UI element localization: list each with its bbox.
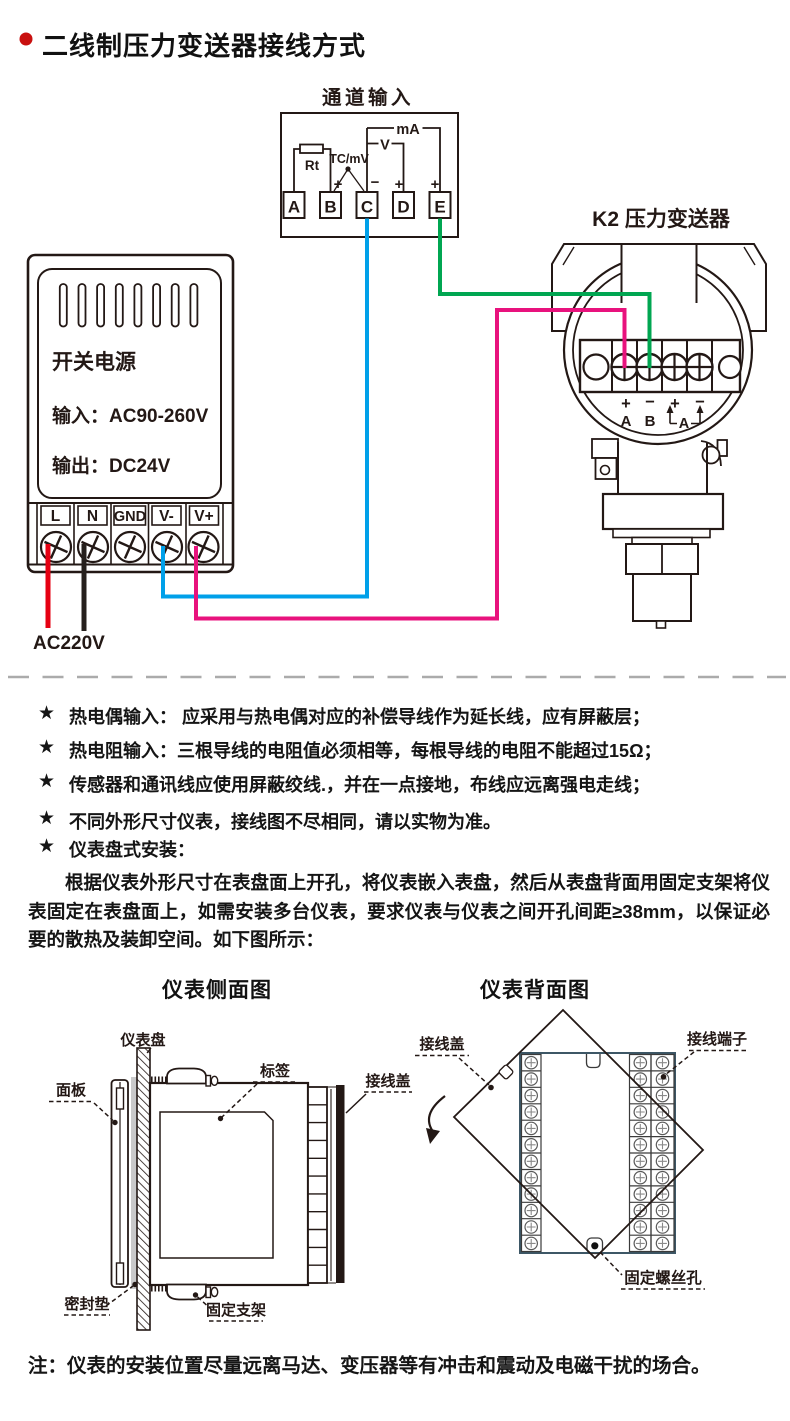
tx-sign-2: −: [645, 393, 655, 411]
installation-diagrams: 仪表盘 面板 标签 接线盖 密封垫 固定支架: [0, 1005, 790, 1340]
process-connection: [603, 442, 723, 628]
star-icon: ★: [38, 836, 55, 862]
note-item: ★ 热电偶输入： 应采用与热电偶对应的补偿导线作为延长线，应有屏蔽层；: [38, 703, 650, 729]
terminal-cover-bar: [336, 1085, 345, 1283]
install-intro-paragraph: 根据仪表外形尺寸在表盘面上开孔，将仪表嵌入表盘，然后从表盘背面用固定支架将仪表固…: [28, 869, 770, 955]
star-icon: ★: [38, 703, 55, 729]
cover-screw-hole: [498, 1064, 514, 1080]
back-view-title: 仪表背面图: [450, 974, 620, 1004]
psu-terminal-vminus: V-: [159, 508, 174, 525]
psu-output-spec: 输出：DC24V: [52, 454, 171, 477]
terminal-c-label: C: [361, 198, 373, 217]
sign-plus-b: +: [334, 176, 343, 193]
wire-supply-pink: [196, 310, 625, 619]
tx-letter-b: B: [645, 413, 656, 430]
sign-plus-e: +: [431, 176, 440, 193]
psu-terminal-labels: L N GND V- V+: [41, 506, 219, 525]
terminal-d-label: D: [397, 198, 409, 217]
channel-input-block: 通道输入 Rt TC/mV V mA + − + + A B C D: [281, 86, 458, 237]
mains-voltage-label: AC220V: [33, 633, 105, 654]
label-tag-label: 标签: [259, 1062, 291, 1080]
psu-terminal-n: N: [87, 508, 98, 525]
wiring-diagram: 通道输入 Rt TC/mV V mA + − + + A B C D: [0, 0, 790, 692]
v-range-label: V: [380, 138, 390, 154]
note-text: 不同外形尺寸仪表，接线图不尽相同，请以实物为准。: [69, 808, 501, 834]
footer-note: 注：仪表的安装位置尽量远离马达、变压器等有冲击和震动及电磁干扰的场合。: [28, 1349, 773, 1378]
sign-plus-d: +: [395, 176, 404, 193]
psu-input-spec: 输入：AC90-260V: [52, 404, 209, 427]
power-supply-block: 开关电源 输入：AC90-260V 输出：DC24V L N GND V- V+: [28, 255, 233, 572]
terminal-b-label: B: [324, 198, 336, 217]
star-icon: ★: [38, 771, 55, 797]
terminal-a-label: A: [288, 198, 300, 217]
psu-terminal-vplus: V+: [194, 508, 213, 525]
terminal-cover-label-back: 接线盖: [419, 1035, 464, 1053]
gasket-strip: [131, 1077, 137, 1289]
rear-terminal-stack: [308, 1087, 327, 1283]
psu-screw-terminals: [39, 530, 220, 563]
side-view-title: 仪表侧面图: [132, 974, 302, 1004]
ma-range-label: mA: [396, 122, 420, 138]
side-view-diagram: 仪表盘 面板 标签 接线盖 密封垫 固定支架: [49, 1031, 412, 1330]
loop-label: A: [679, 416, 690, 432]
terminals-label: 接线端子: [687, 1030, 747, 1048]
tx-letter-a: A: [621, 413, 632, 430]
note-text: 仪表盘式安装：: [69, 836, 195, 862]
tx-sign-1: +: [621, 395, 631, 413]
note-text: 热电阻输入：三根导线的电阻值必须相等，每根导线的电阻不能超过15Ω；: [69, 737, 661, 763]
star-icon: ★: [38, 737, 55, 763]
screw-hole-label: 固定螺丝孔: [624, 1268, 702, 1287]
rt-label: Rt: [305, 158, 320, 173]
bracket-label: 固定支架: [206, 1301, 266, 1319]
note-text: 传感器和通讯线应使用屏蔽绞线.，并在一点接地，布线应远离强电走线；: [69, 771, 650, 797]
note-item: ★ 热电阻输入：三根导线的电阻值必须相等，每根导线的电阻不能超过15Ω；: [38, 737, 662, 763]
terminal-cover-label-side: 接线盖: [365, 1072, 410, 1090]
pressure-transmitter: K2 压力变送器 + − + − A B A: [552, 207, 766, 628]
rt-resistor-symbol: [300, 145, 323, 154]
front-panel-label: 面板: [56, 1081, 87, 1099]
channel-input-title: 通道输入: [322, 86, 414, 109]
note-item: ★ 不同外形尺寸仪表，接线图不尽相同，请以实物为准。: [38, 808, 501, 834]
bottom-bracket: [151, 1285, 218, 1300]
back-view-diagram: 接线盖 接线端子 固定螺丝孔: [415, 1010, 747, 1289]
tc-mv-label: TC/mV: [329, 152, 369, 166]
sign-minus-c: −: [371, 174, 380, 191]
note-item: ★ 传感器和通讯线应使用屏蔽绞线.，并在一点接地，布线应远离强电走线；: [38, 771, 650, 797]
terminal-e-label: E: [434, 198, 445, 217]
psu-terminal-gnd: GND: [114, 509, 146, 525]
panel-board-bar: [137, 1048, 150, 1330]
psu-terminal-l: L: [51, 508, 60, 525]
gasket-label: 密封垫: [64, 1295, 109, 1313]
rotate-arrow-icon: [426, 1096, 445, 1144]
star-icon: ★: [38, 808, 55, 834]
label-area: [160, 1112, 273, 1258]
note-text: 热电偶输入： 应采用与热电偶对应的补偿导线作为延长线，应有屏蔽层；: [69, 703, 650, 729]
psu-name: 开关电源: [52, 350, 136, 374]
transmitter-title: K2 压力变送器: [592, 207, 731, 231]
note-item: ★ 仪表盘式安装：: [38, 836, 195, 862]
panel-board-label: 仪表盘: [119, 1031, 165, 1049]
